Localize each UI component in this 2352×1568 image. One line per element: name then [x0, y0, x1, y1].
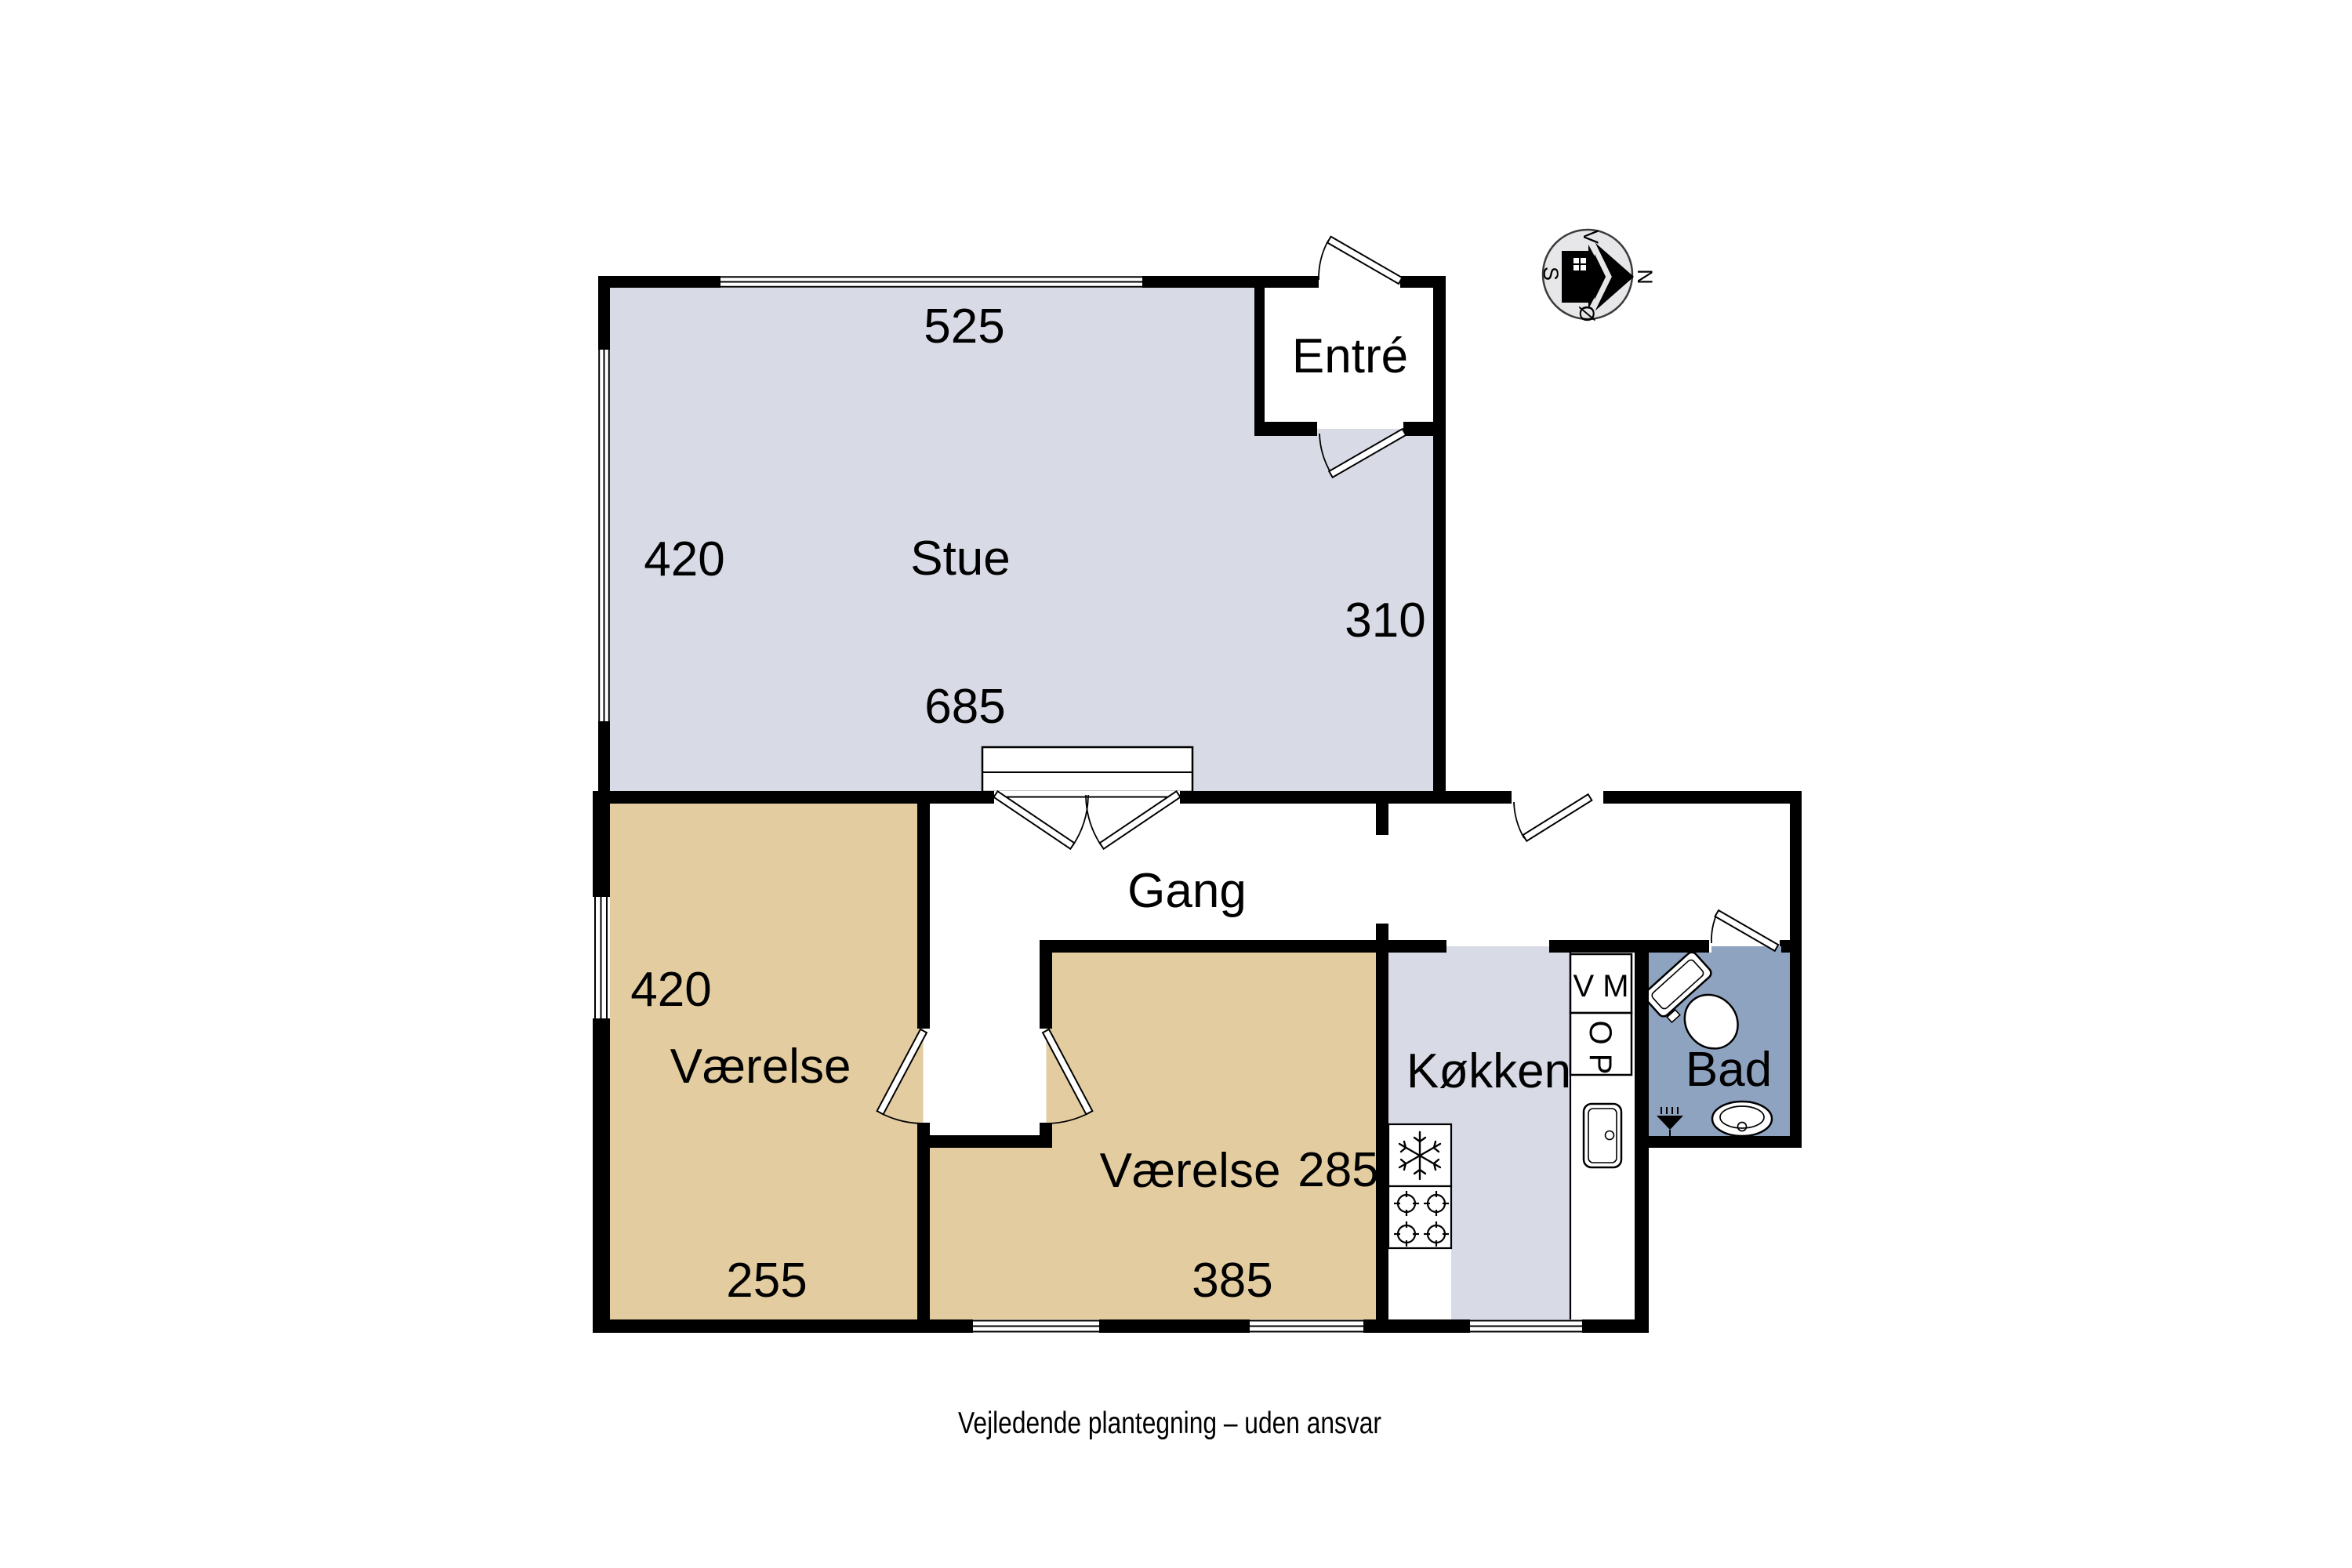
svg-text:525: 525 — [924, 299, 1004, 354]
svg-text:Bad: Bad — [1686, 1043, 1772, 1097]
svg-text:Værelse: Værelse — [670, 1040, 851, 1094]
svg-text:Entré: Entré — [1292, 329, 1408, 383]
svg-text:255: 255 — [726, 1254, 807, 1308]
svg-text:V M: V M — [1573, 969, 1628, 1004]
svg-text:420: 420 — [630, 963, 711, 1017]
svg-text:V: V — [1579, 230, 1602, 244]
svg-text:Værelse: Værelse — [1100, 1144, 1281, 1198]
svg-text:S: S — [1539, 267, 1563, 281]
svg-text:Ø: Ø — [1575, 305, 1599, 321]
svg-text:Køkken: Køkken — [1406, 1044, 1571, 1098]
svg-text:285: 285 — [1298, 1143, 1378, 1197]
svg-text:Gang: Gang — [1127, 864, 1247, 918]
svg-text:Vejledende plantegning – uden: Vejledende plantegning – uden ansvar — [958, 1406, 1381, 1440]
svg-text:685: 685 — [924, 680, 1005, 734]
svg-text:N: N — [1633, 269, 1657, 285]
svg-text:385: 385 — [1192, 1254, 1272, 1308]
svg-text:420: 420 — [644, 532, 724, 586]
svg-text:310: 310 — [1345, 593, 1425, 648]
svg-text:Stue: Stue — [910, 532, 1011, 586]
svg-text:O P: O P — [1583, 1021, 1617, 1075]
